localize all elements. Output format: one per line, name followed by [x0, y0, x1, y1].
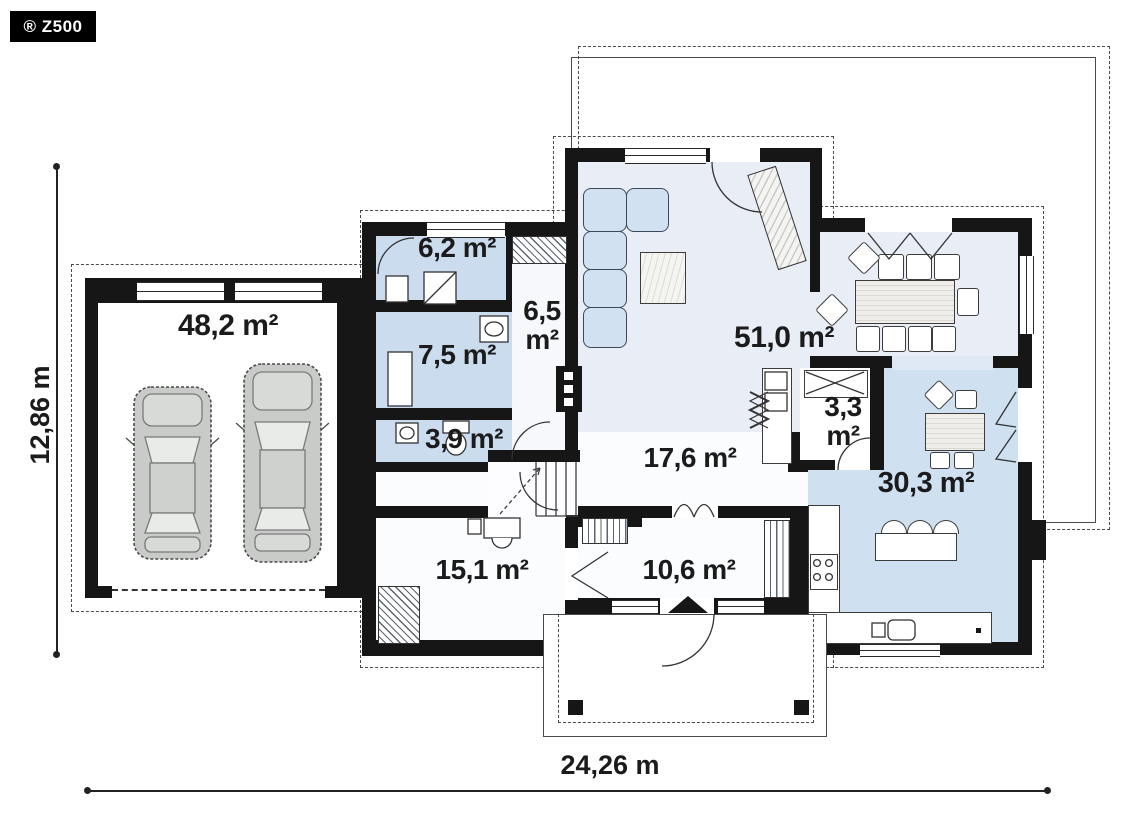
dining-chair [934, 254, 960, 280]
vestibule-window-right [718, 600, 764, 614]
dimension-endpoint [1044, 787, 1051, 794]
kitchen-area-label: 30,3 m² [846, 469, 1006, 499]
entry-door-opening [660, 598, 714, 614]
dining-chair [882, 326, 906, 352]
garage-door-opening [112, 584, 325, 598]
garage-area-label: 48,2 m² [148, 311, 308, 342]
kitchen-window-bottom [860, 644, 940, 657]
kitchen-island [875, 533, 957, 561]
dining-window-right [1019, 256, 1034, 334]
room-garage-floor [98, 303, 337, 586]
dining-chair [908, 326, 932, 352]
floor-plan-canvas: 48,2 m² 6,2 m² 6,5 m² 7,5 m² 3,9 m² 51,0… [0, 0, 1122, 826]
sofa-cushion [583, 269, 627, 308]
sofa-cushion [583, 188, 627, 232]
porch-dashed [558, 614, 814, 723]
sofa-cushion [583, 231, 627, 270]
dimension-endpoint [53, 163, 60, 170]
garage-door-dashed-line [112, 589, 325, 591]
chimney-flue [564, 385, 573, 393]
stairs-floor [488, 462, 578, 518]
dimension-endpoint [84, 787, 91, 794]
sofa-cushion [583, 307, 627, 348]
hall-vestibule-opening [672, 506, 718, 518]
height-dimension-label: 12,86 m [25, 355, 55, 475]
coffee-table [640, 252, 686, 304]
sofa-cushion [626, 188, 669, 232]
room-area-label: 15,1 m² [402, 556, 562, 585]
pantry-area-label: 3,3 m² [816, 393, 870, 450]
corridor-area-label: 6,5 m² [515, 297, 569, 354]
hall-kitchen-passage [788, 472, 808, 506]
kitchen-terrace-door-opening [1018, 388, 1032, 462]
power-point [976, 628, 981, 633]
porch-column [568, 700, 583, 715]
chimney-flue [564, 398, 573, 406]
hall-area-label: 17,6 m² [610, 444, 770, 473]
width-dimension-line [88, 790, 1048, 792]
garage-window-left [137, 282, 224, 301]
chimney-block [556, 366, 582, 412]
porch-column [794, 700, 809, 715]
vestibule-window-left [612, 600, 658, 614]
bathroom-area-label: 7,5 m² [397, 341, 517, 370]
dining-chair [932, 326, 956, 352]
room-wardrobe [378, 586, 420, 644]
dimension-endpoint [53, 651, 60, 658]
dining-chair [957, 288, 979, 316]
brand-badge: ® Z500 [10, 11, 96, 42]
dining-chair [906, 254, 932, 280]
dining-table [855, 280, 955, 324]
living-area-label: 51,0 m² [704, 323, 864, 354]
room-door-opening [565, 548, 578, 600]
vestibule-area-label: 10,6 m² [609, 556, 769, 585]
living-window-top [625, 148, 706, 164]
kitchen-table [925, 413, 985, 451]
cooktop [810, 554, 838, 590]
living-door-opening-top [710, 148, 760, 162]
width-dimension-label: 24,26 m [530, 750, 690, 781]
kitchen-wall-step [1018, 520, 1046, 560]
dining-chair [878, 254, 904, 280]
chimney-flue [564, 372, 573, 380]
utility-area-label: 6,2 m² [397, 234, 517, 263]
dining-french-door-opening [865, 218, 952, 232]
garage-window-right [235, 282, 322, 301]
dining-kitchen-opening [892, 356, 993, 370]
corridor-wardrobe [512, 236, 567, 264]
kitchen-counter-bottom [808, 612, 992, 644]
vestibule-wardrobe [582, 518, 628, 544]
wc-area-label: 3,9 m² [404, 425, 524, 454]
kitchen-chair [955, 390, 977, 409]
height-dimension-line [56, 167, 58, 655]
